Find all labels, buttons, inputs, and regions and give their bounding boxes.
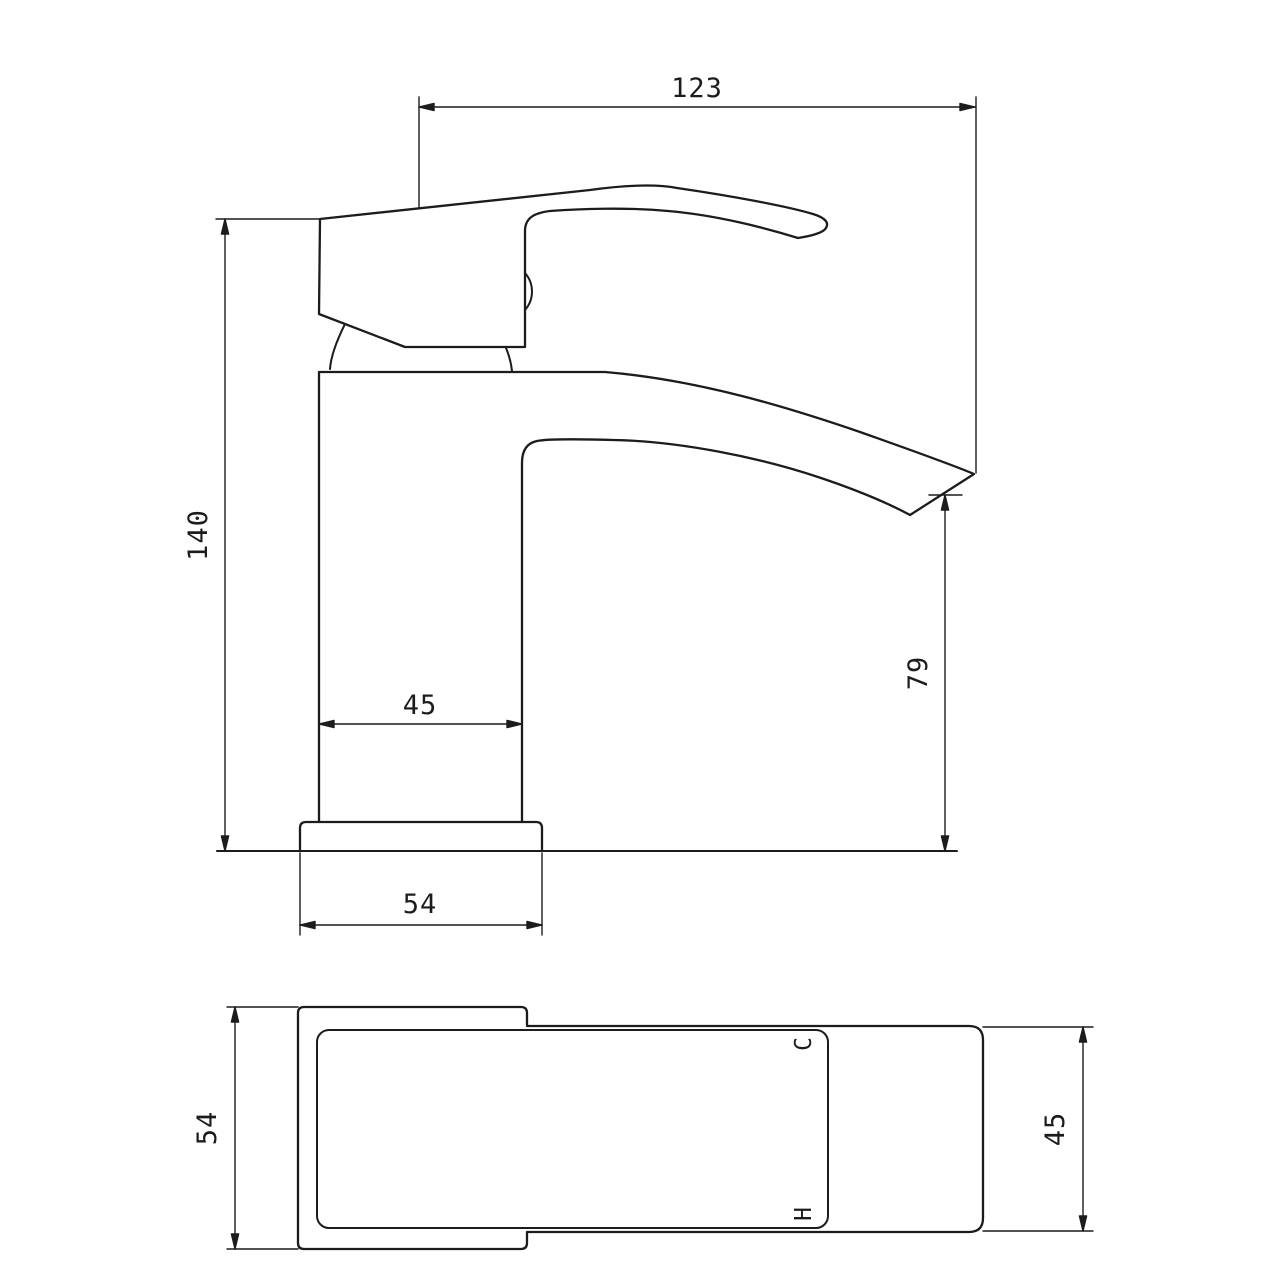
base-plate-outline	[300, 822, 542, 851]
arrowhead-up	[221, 219, 228, 234]
dim-label-45-front: 45	[403, 690, 438, 721]
arrowhead-down	[941, 836, 948, 851]
dim-label-79: 79	[903, 656, 934, 691]
dim-123	[419, 103, 975, 110]
dim-label-54-plan: 54	[192, 1111, 223, 1146]
cold-port-label: C	[791, 1037, 817, 1051]
dim-label-45-plan: 45	[1040, 1112, 1071, 1147]
dim-label-140: 140	[183, 509, 214, 561]
plan-view: C H 54 45	[192, 1007, 1093, 1249]
dim-45-plan	[983, 1027, 1093, 1231]
arrowhead-left	[300, 921, 315, 928]
body-and-spout-outline	[319, 372, 974, 822]
plan-spout-outline	[527, 1026, 983, 1232]
dim-140	[221, 219, 228, 851]
dim-label-123: 123	[671, 73, 723, 104]
arrowhead-right	[527, 921, 542, 928]
drawing-canvas: 123 140 79 45 54 C H	[0, 0, 1280, 1280]
ball-joint-arc-right	[506, 348, 512, 371]
plan-base-plate-outline	[298, 1007, 527, 1249]
arrowhead-down	[1079, 1216, 1086, 1231]
front-view: 123 140 79 45 54	[183, 73, 976, 935]
arrowhead-up	[941, 495, 948, 510]
ball-joint-arc-left	[330, 324, 345, 369]
plan-dim-labels: 54 45	[192, 1111, 1071, 1147]
arrowhead-left	[419, 103, 434, 110]
dim-label-54-front: 54	[403, 889, 438, 920]
plan-inner-body-outline	[317, 1030, 828, 1228]
arrowhead-down	[221, 836, 228, 851]
arrowhead-up	[231, 1007, 238, 1022]
arrowhead-up	[1079, 1027, 1086, 1042]
hot-port-label: H	[791, 1207, 817, 1221]
dim-54-plan	[227, 1007, 298, 1249]
port-labels: C H	[791, 1037, 817, 1221]
arrowhead-right	[960, 103, 975, 110]
handle-head-outline	[319, 186, 827, 347]
faucet-technical-drawing: 123 140 79 45 54 C H	[0, 0, 1280, 1280]
arrowhead-down	[231, 1234, 238, 1249]
